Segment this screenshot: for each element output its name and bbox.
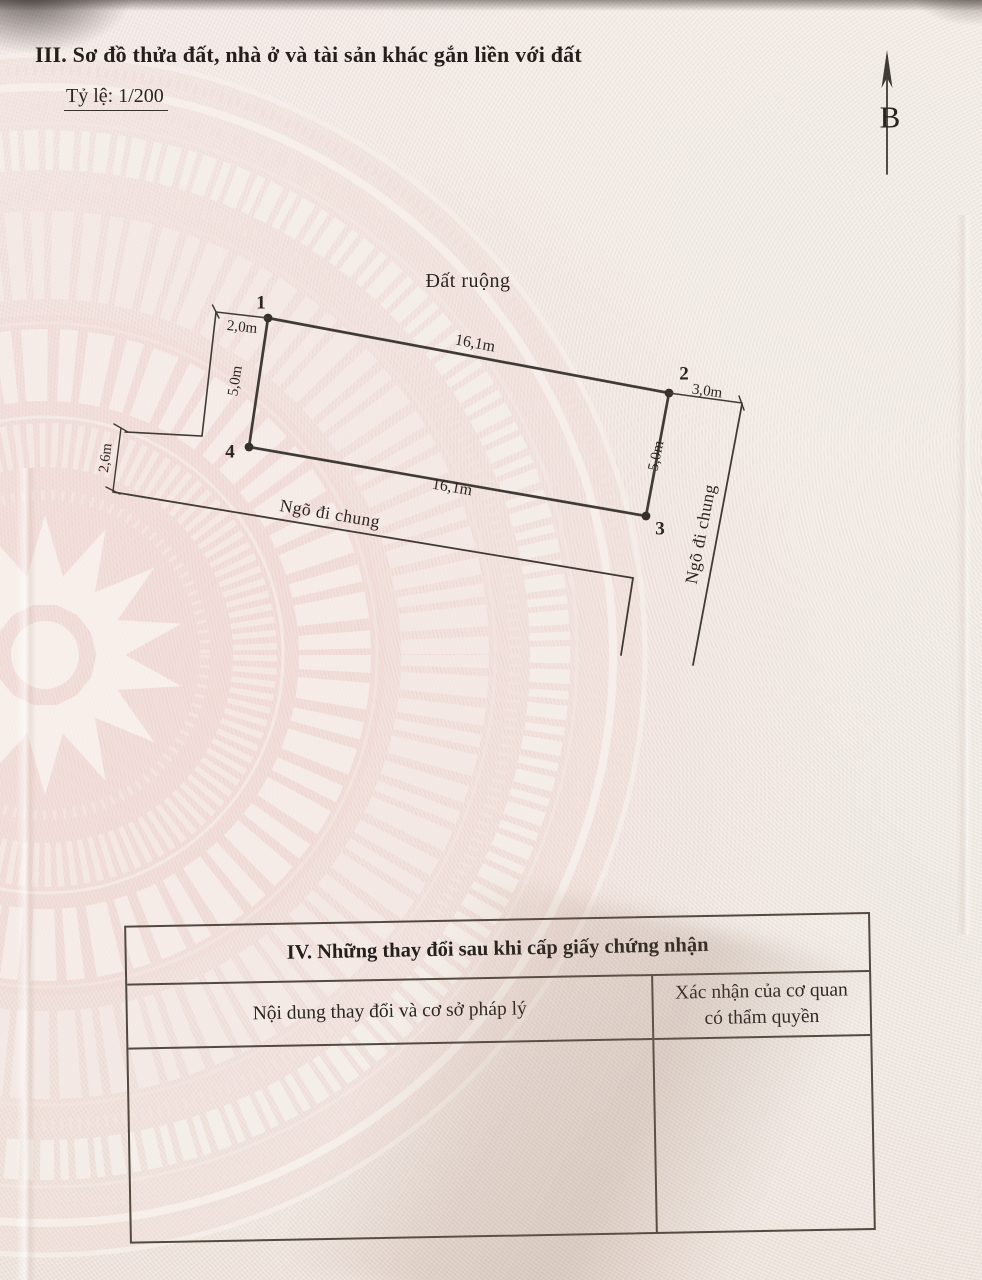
- changes-table: IV. Những thay đổi sau khi cấp giấy chứn…: [124, 912, 876, 1244]
- dimension-2-0m: 2,0m: [226, 319, 258, 337]
- col-content-header: Nội dung thay đổi và cơ sở pháp lý: [127, 976, 652, 1050]
- vertex-label-2: 2: [679, 365, 689, 384]
- adjacent-land-label: Đất ruộng: [425, 271, 510, 291]
- changes-table-col-confirmation: Xác nhận của cơ quan có thẩm quyền: [653, 972, 874, 1232]
- scale-label: Tỷ lệ: 1/200: [64, 86, 168, 111]
- section-title: III. Sơ đồ thửa đất, nhà ở và tài sản kh…: [35, 44, 582, 66]
- col-confirmation-header: Xác nhận của cơ quan có thẩm quyền: [653, 972, 870, 1040]
- col-content-body: [128, 1040, 655, 1242]
- north-label: B: [880, 102, 901, 133]
- col-confirmation-header-line2: có thẩm quyền: [704, 1004, 819, 1032]
- col-confirmation-body: [654, 1036, 873, 1232]
- vertex-label-4: 4: [225, 443, 235, 462]
- certificate-page: III. Sơ đồ thửa đất, nhà ở và tài sản kh…: [0, 0, 982, 1280]
- vertex-label-1: 1: [256, 294, 266, 313]
- dimension-2-6m: 2,6m: [97, 443, 115, 474]
- vertex-label-3: 3: [655, 520, 665, 539]
- col-confirmation-header-line1: Xác nhận của cơ quan: [675, 977, 848, 1006]
- changes-table-col-content: Nội dung thay đổi và cơ sở pháp lý: [127, 976, 658, 1242]
